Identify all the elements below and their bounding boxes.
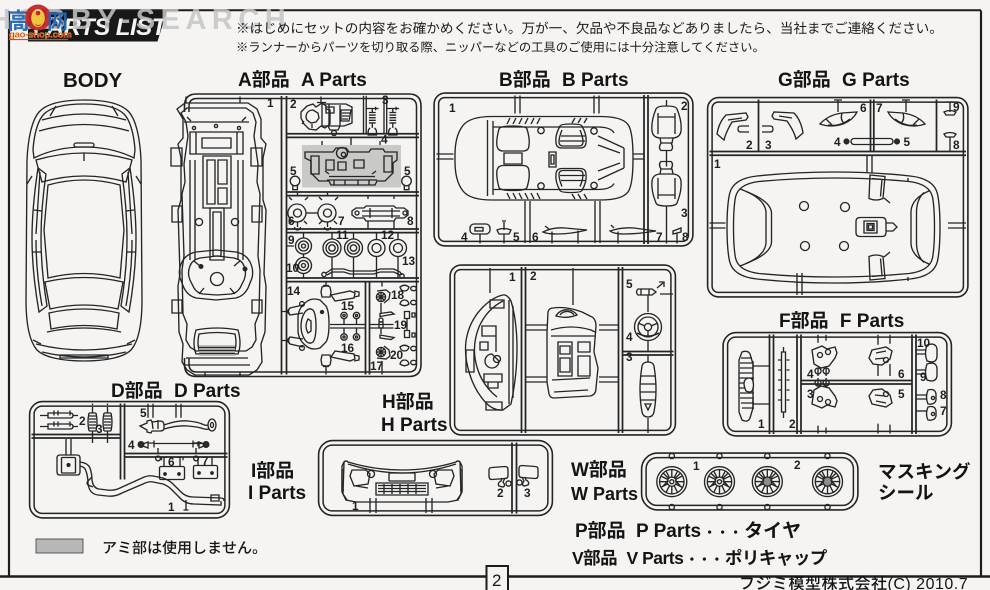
svg-text:5: 5 xyxy=(626,277,633,291)
svg-text:※はじめにセットの内容をお確かめください。万が一、欠品や不良: ※はじめにセットの内容をお確かめください。万が一、欠品や不良品などありましたら、… xyxy=(236,17,943,37)
svg-text:F部品 F Parts: F部品 F Parts xyxy=(779,306,904,333)
svg-text:3: 3 xyxy=(765,138,772,152)
svg-text:W部品: W部品 xyxy=(571,455,627,482)
svg-text:5: 5 xyxy=(404,164,411,178)
svg-text:2: 2 xyxy=(746,138,753,152)
svg-text:1: 1 xyxy=(693,459,700,473)
svg-text:20: 20 xyxy=(390,348,404,362)
svg-text:6: 6 xyxy=(532,230,539,244)
svg-text:9: 9 xyxy=(288,233,295,247)
svg-text:4: 4 xyxy=(626,330,633,344)
svg-text:H部品: H部品 xyxy=(382,387,434,414)
svg-text:2: 2 xyxy=(789,417,796,431)
svg-text:1: 1 xyxy=(758,417,765,431)
svg-text:3: 3 xyxy=(524,486,531,500)
svg-text:8: 8 xyxy=(953,138,960,152)
svg-text:5: 5 xyxy=(904,135,911,149)
svg-text:9: 9 xyxy=(920,370,927,384)
svg-text:4: 4 xyxy=(834,135,841,149)
svg-text:8: 8 xyxy=(682,230,689,244)
svg-text:7: 7 xyxy=(940,404,947,418)
svg-text:A部品 A Parts: A部品 A Parts xyxy=(238,65,367,92)
svg-text:4: 4 xyxy=(128,438,135,452)
svg-text:3: 3 xyxy=(807,387,814,401)
svg-text:I Parts: I Parts xyxy=(248,483,306,504)
svg-text:2: 2 xyxy=(530,269,537,283)
svg-text:6: 6 xyxy=(860,101,867,115)
svg-text:1: 1 xyxy=(714,157,721,171)
svg-text:17: 17 xyxy=(370,359,384,373)
svg-text:BODY: BODY xyxy=(63,69,123,92)
svg-text:D部品 D Parts: D部品 D Parts xyxy=(111,376,241,403)
svg-text:B部品 B Parts: B部品 B Parts xyxy=(499,65,629,92)
svg-text:2: 2 xyxy=(79,414,86,428)
svg-text:アミ部は使用しません。: アミ部は使用しません。 xyxy=(102,537,267,558)
svg-text:3: 3 xyxy=(382,93,389,107)
svg-text:10: 10 xyxy=(917,336,931,350)
svg-text:18: 18 xyxy=(391,288,405,302)
svg-text:11: 11 xyxy=(336,228,349,242)
svg-text:2: 2 xyxy=(497,486,504,500)
svg-text:12: 12 xyxy=(381,228,395,242)
svg-text:10: 10 xyxy=(286,261,300,275)
svg-text:3: 3 xyxy=(626,350,633,364)
svg-text:15: 15 xyxy=(341,299,355,313)
svg-text:※ランナーからパーツを切り取る際、ニッパーなどの工具のご使用: ※ランナーからパーツを切り取る際、ニッパーなどの工具のご使用には十分注意してくだ… xyxy=(236,38,765,56)
svg-text:7: 7 xyxy=(656,230,663,244)
svg-text:7: 7 xyxy=(338,214,345,228)
svg-text:I部品: I部品 xyxy=(251,456,294,483)
svg-text:3: 3 xyxy=(681,206,688,220)
svg-text:P部品 P Parts・・・タイヤ: P部品 P Parts・・・タイヤ xyxy=(575,516,801,543)
svg-text:G部品 G Parts: G部品 G Parts xyxy=(778,65,910,92)
svg-text:14: 14 xyxy=(287,284,301,298)
svg-text:1: 1 xyxy=(168,500,175,514)
svg-text:2: 2 xyxy=(681,99,688,113)
svg-text:6: 6 xyxy=(898,367,905,381)
svg-text:2: 2 xyxy=(290,97,297,111)
svg-text:4: 4 xyxy=(807,367,814,381)
svg-text:5: 5 xyxy=(898,387,905,401)
svg-text:H Parts: H Parts xyxy=(381,415,448,436)
svg-text:1: 1 xyxy=(352,499,359,513)
svg-text:3: 3 xyxy=(96,422,103,436)
svg-text:1: 1 xyxy=(449,101,456,115)
svg-text:2: 2 xyxy=(492,571,501,590)
svg-text:16: 16 xyxy=(341,341,355,355)
svg-text:7: 7 xyxy=(202,454,209,468)
svg-text:8: 8 xyxy=(940,388,947,402)
svg-text:7: 7 xyxy=(876,101,883,115)
svg-text:5: 5 xyxy=(513,230,520,244)
svg-text:4: 4 xyxy=(461,230,468,244)
svg-text:V部品 V Parts・・・ポリキャップ: V部品 V Parts・・・ポリキャップ xyxy=(572,545,828,570)
svg-text:13: 13 xyxy=(402,254,416,268)
svg-text:8: 8 xyxy=(407,214,414,228)
svg-text:2: 2 xyxy=(794,458,801,472)
svg-text:1: 1 xyxy=(509,270,516,284)
svg-text:5: 5 xyxy=(140,406,147,420)
svg-text:19: 19 xyxy=(394,318,408,332)
svg-text:1: 1 xyxy=(267,96,274,110)
svg-text:6: 6 xyxy=(288,214,295,228)
svg-text:W Parts: W Parts xyxy=(571,484,638,504)
svg-text:シール: シール xyxy=(878,479,934,505)
svg-text:5: 5 xyxy=(290,164,297,178)
svg-text:4: 4 xyxy=(381,133,388,147)
svg-text:6: 6 xyxy=(168,455,175,469)
svg-text:9: 9 xyxy=(953,100,960,114)
